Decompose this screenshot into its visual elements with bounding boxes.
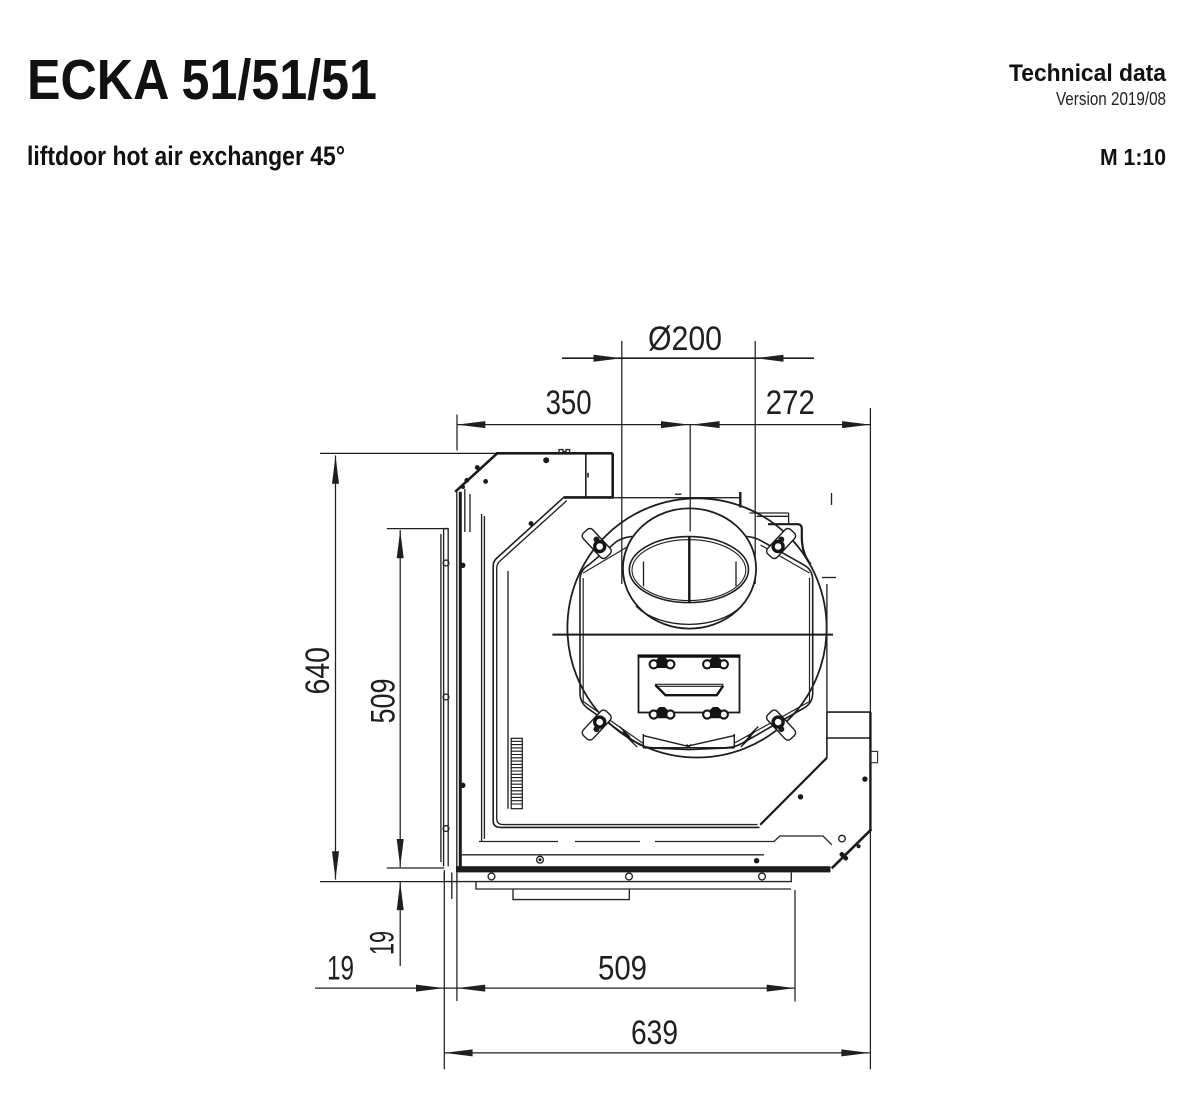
svg-text:509: 509: [365, 679, 403, 724]
svg-text:ECKA 51/51/51: ECKA 51/51/51: [27, 48, 377, 112]
svg-text:Version 2019/08: Version 2019/08: [1056, 89, 1166, 109]
svg-text:509: 509: [598, 950, 647, 988]
svg-text:640: 640: [299, 647, 337, 695]
svg-text:19: 19: [364, 931, 402, 955]
svg-text:liftdoor hot air exchanger 45°: liftdoor hot air exchanger 45°: [27, 141, 345, 171]
svg-text:M 1:10: M 1:10: [1100, 144, 1166, 170]
svg-text:Technical data: Technical data: [1009, 60, 1167, 87]
svg-text:272: 272: [766, 384, 815, 422]
svg-text:Ø200: Ø200: [648, 320, 722, 358]
svg-text:639: 639: [631, 1014, 678, 1052]
svg-text:19: 19: [327, 950, 354, 988]
svg-text:350: 350: [546, 384, 592, 422]
